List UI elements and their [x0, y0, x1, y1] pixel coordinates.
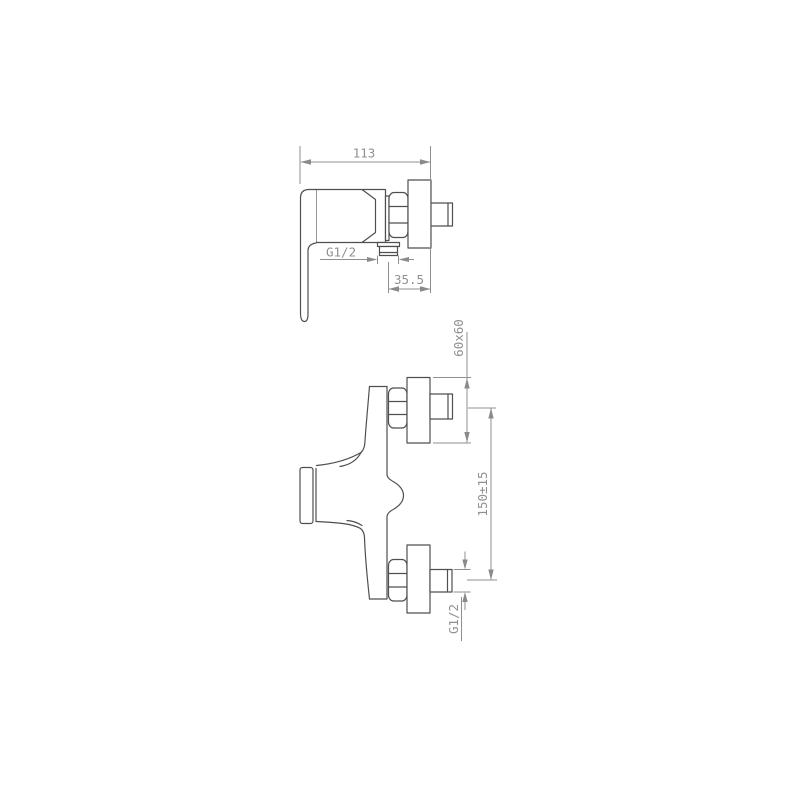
wall-flange: [408, 180, 431, 248]
body-left-edge-lower: [361, 529, 370, 600]
dimension-outlet-offset: 35.5: [389, 262, 431, 293]
body-left-edge-upper: [361, 387, 370, 453]
top-wall-flange: [407, 378, 430, 444]
dim-label-150-15: 150±15: [475, 471, 490, 516]
dim-label-g12-inlet: G1/2: [446, 604, 461, 634]
dim-label-35-5: 35.5: [394, 272, 424, 287]
top-hex-nut: [389, 388, 408, 428]
handle-lever: [301, 190, 317, 322]
dim-label-g12-outlet: G1/2: [326, 245, 356, 260]
hex-nut: [389, 193, 408, 238]
dim-label-113: 113: [353, 146, 376, 161]
dim-label-60x60: 60x60: [451, 319, 466, 357]
handle-grip-top-edge: [317, 453, 362, 466]
dimension-inlet-thread: G1/2: [446, 552, 471, 642]
front-view: 60x60 150±15 G1/2: [300, 319, 497, 641]
inlet-connector: [431, 203, 453, 226]
bottom-wall-flange: [407, 545, 430, 613]
handle-end-cap: [300, 468, 313, 524]
shower-outlet: [380, 247, 398, 256]
dimension-inlet-spacing: 150±15: [467, 408, 497, 580]
top-inlet-connector: [430, 394, 453, 419]
side-view: 113 G1/2 35.5: [300, 146, 453, 322]
bottom-inlet-connector: [430, 570, 452, 593]
shower-mixer-technical-drawing: 113 G1/2 35.5: [0, 0, 800, 800]
dimension-flange-size: 60x60: [433, 319, 471, 443]
technical-drawing-page: 113 G1/2 35.5: [0, 0, 800, 800]
dimension-outlet-thread: G1/2: [320, 245, 414, 265]
handle-grip-bottom-edge: [317, 522, 361, 529]
bottom-hex-nut: [389, 560, 408, 602]
